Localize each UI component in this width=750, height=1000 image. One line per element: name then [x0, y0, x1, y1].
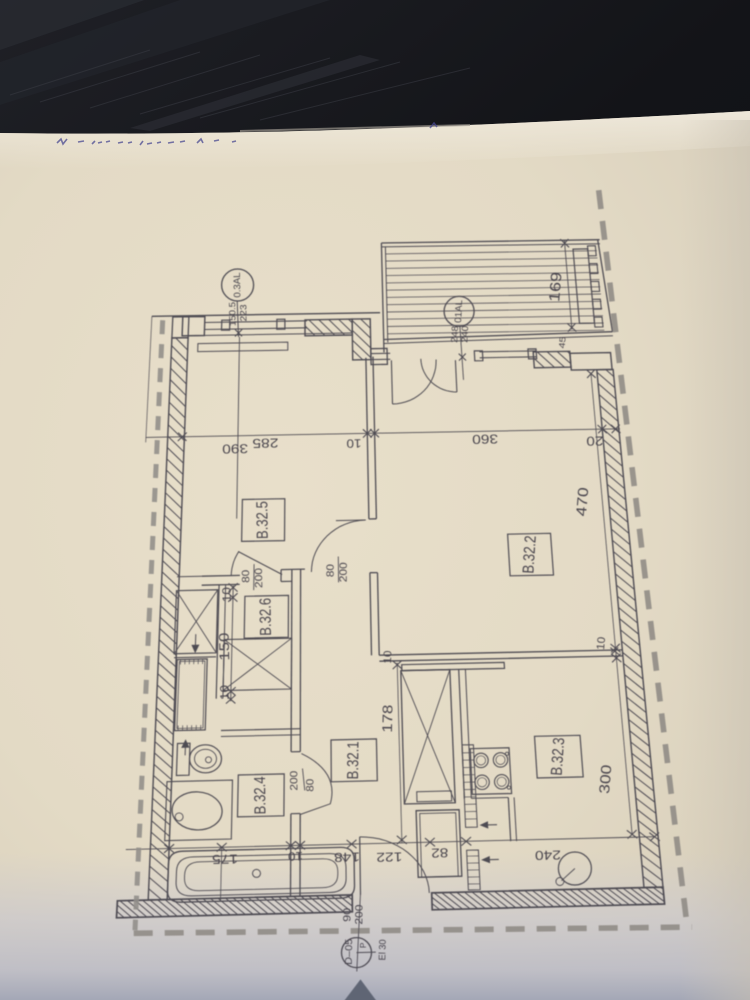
svg-text:80: 80: [240, 570, 252, 583]
svg-text:80: 80: [304, 779, 316, 792]
svg-text:10: 10: [382, 650, 394, 663]
svg-text:169: 169: [546, 271, 565, 302]
svg-text:223: 223: [238, 304, 248, 321]
svg-text:122: 122: [376, 849, 402, 865]
svg-text:10: 10: [287, 849, 303, 863]
svg-text:P: P: [358, 942, 368, 948]
svg-text:470: 470: [574, 487, 592, 517]
svg-text:B.32.5: B.32.5: [254, 501, 271, 539]
svg-text:D–05: D–05: [344, 938, 355, 965]
svg-text:B.32.4: B.32.4: [252, 776, 269, 814]
svg-text:360: 360: [472, 432, 498, 447]
svg-text:150.5: 150.5: [227, 302, 238, 326]
svg-text:248: 248: [449, 326, 460, 343]
svg-text:El 30: El 30: [377, 939, 388, 960]
svg-text:240: 240: [459, 325, 470, 342]
svg-text:240: 240: [535, 847, 561, 863]
svg-text:10: 10: [346, 436, 362, 450]
svg-text:80: 80: [325, 564, 337, 577]
svg-text:B.32.1: B.32.1: [345, 741, 363, 779]
svg-text:200: 200: [253, 568, 265, 588]
svg-text:200: 200: [338, 562, 350, 582]
svg-text:90: 90: [341, 908, 353, 922]
svg-text:178: 178: [379, 704, 396, 733]
svg-text:10: 10: [595, 636, 608, 650]
svg-text:0.3AL: 0.3AL: [232, 272, 244, 297]
svg-text:285: 285: [252, 436, 278, 451]
svg-text:B.32.6: B.32.6: [257, 598, 274, 636]
svg-text:45: 45: [557, 336, 568, 349]
svg-text:20: 20: [586, 434, 603, 449]
svg-text:300: 300: [597, 764, 615, 794]
svg-text:175: 175: [212, 851, 238, 867]
svg-text:B.32.3: B.32.3: [549, 737, 569, 776]
svg-text:01AL: 01AL: [453, 300, 465, 324]
svg-text:B.32.2: B.32.2: [520, 535, 540, 574]
svg-text:10: 10: [217, 685, 231, 701]
svg-text:200: 200: [288, 771, 300, 791]
svg-text:82: 82: [431, 845, 448, 860]
svg-text:148: 148: [334, 849, 360, 865]
svg-text:390: 390: [222, 441, 248, 456]
svg-text:10: 10: [219, 587, 233, 603]
